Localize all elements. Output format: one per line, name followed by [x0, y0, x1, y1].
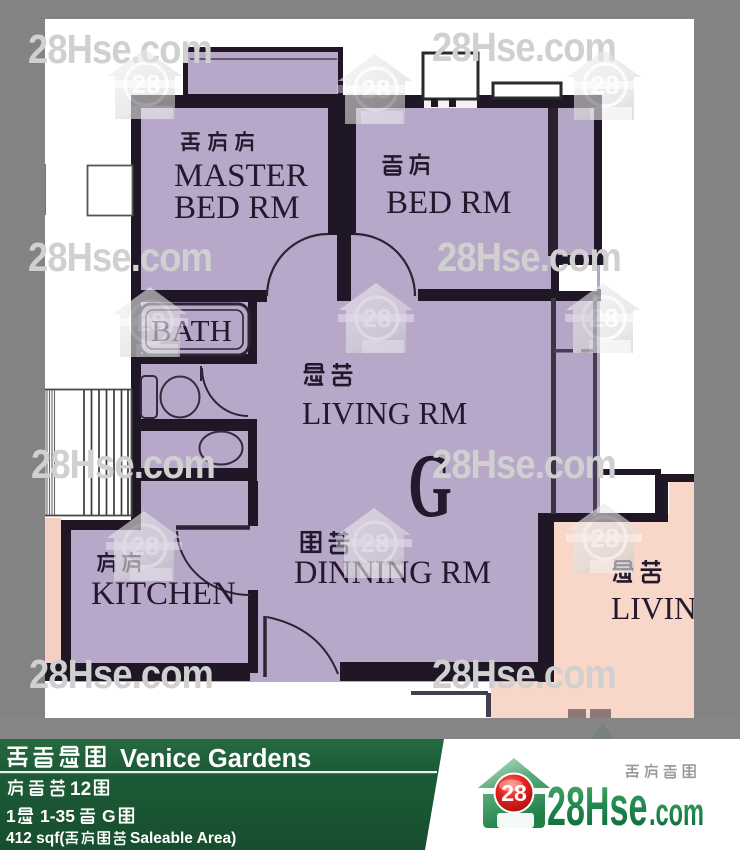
svg-text:BED RM: BED RM — [174, 190, 300, 226]
svg-text:12: 12 — [70, 779, 91, 800]
svg-text:Venice Gardens: Venice Gardens — [120, 745, 311, 773]
svg-text:412 sqf(: 412 sqf( — [6, 830, 65, 847]
svg-text:LIVING RM: LIVING RM — [302, 396, 467, 431]
svg-text:MASTER: MASTER — [174, 158, 308, 194]
svg-text:G: G — [102, 806, 116, 826]
svg-text:BED RM: BED RM — [386, 185, 512, 221]
svg-text:1: 1 — [6, 806, 16, 826]
svg-text:28Hse: 28Hse — [547, 776, 647, 837]
svg-text:Saleable Area): Saleable Area) — [130, 830, 236, 847]
svg-text:1-35: 1-35 — [40, 806, 75, 826]
svg-text:KITCHEN: KITCHEN — [91, 576, 236, 612]
svg-text:28: 28 — [501, 780, 527, 806]
svg-text:.com: .com — [649, 790, 704, 833]
